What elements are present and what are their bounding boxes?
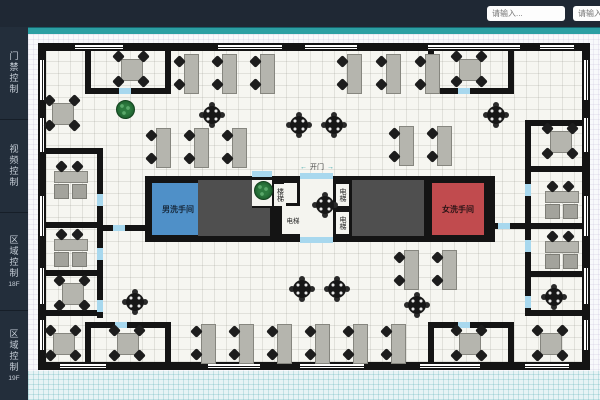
arrow-left-icon: ← (300, 164, 307, 171)
desk-top (222, 54, 237, 94)
door-marker[interactable] (498, 223, 510, 229)
desk-cluster-4 (45, 96, 79, 130)
lobby-side-box (284, 183, 297, 203)
wall-segment (85, 322, 91, 368)
elevator-room: 电梯 (282, 206, 304, 234)
round-table (316, 196, 334, 214)
wall-segment (165, 43, 171, 94)
desk-cluster-4 (452, 52, 486, 86)
cabinet (54, 184, 69, 199)
window-segment (39, 320, 45, 350)
wall-segment (525, 196, 531, 240)
desk-duo (213, 54, 235, 92)
desk-top (277, 324, 292, 364)
window-segment (583, 320, 589, 350)
round-table (293, 280, 311, 298)
desk-duo (390, 126, 412, 164)
desk-top (315, 324, 330, 364)
round-table (290, 116, 308, 134)
cabinet (545, 254, 560, 269)
window-segment (525, 363, 569, 369)
wall-segment (165, 322, 171, 368)
door-marker[interactable] (252, 171, 272, 177)
desk-cluster-4 (110, 326, 144, 360)
desk-top (260, 54, 275, 94)
office-desk (541, 182, 581, 218)
door-marker[interactable] (300, 237, 333, 243)
service-shaft-left (198, 180, 252, 236)
desk-top (425, 54, 440, 94)
door-marker[interactable] (525, 240, 531, 252)
desk-duo (251, 54, 273, 92)
round-table (126, 293, 144, 311)
wall-segment (508, 43, 514, 94)
round-table (487, 106, 505, 124)
window-segment (39, 268, 45, 304)
desk-top (347, 54, 362, 94)
wall-segment (85, 88, 119, 94)
window-segment (583, 60, 589, 100)
desk-cluster-4 (55, 276, 89, 310)
cabinet (54, 252, 69, 267)
desk-top (386, 54, 401, 94)
desk-cluster-4 (452, 326, 486, 360)
wall-segment (428, 322, 434, 368)
door-marker[interactable] (300, 173, 333, 179)
desk-duo (185, 128, 207, 166)
desk-duo (306, 324, 328, 362)
service-shaft-left-extension (252, 208, 270, 236)
wall-segment (46, 148, 97, 154)
desk-top (156, 128, 171, 168)
desk-top (545, 241, 579, 253)
desk-top (201, 324, 216, 364)
round-table (325, 116, 343, 134)
elevator-shaft-1-label: 电梯 (339, 188, 346, 202)
door-marker[interactable] (97, 248, 103, 260)
desk-top (353, 324, 368, 364)
window-segment (583, 268, 589, 304)
round-table (408, 296, 426, 314)
window-segment (75, 44, 123, 50)
open-door-control[interactable]: ← 开门 → (288, 162, 346, 172)
window-segment (60, 363, 106, 369)
desk-top (437, 126, 452, 166)
door-marker[interactable] (458, 88, 470, 94)
stairs-label: 楼梯 (277, 188, 284, 202)
mens-restroom: 男洗手间 (152, 183, 204, 235)
desk-top (404, 250, 419, 290)
desk-top (442, 250, 457, 290)
cabinet (563, 204, 578, 219)
desk-duo (433, 250, 455, 288)
elevator-shaft-2: 电梯 (336, 212, 349, 234)
office-desk (541, 232, 581, 268)
elevator-shaft-1: 电梯 (336, 184, 349, 206)
round-table (545, 288, 563, 306)
desk-duo (268, 324, 290, 362)
cabinet (72, 184, 87, 199)
wall-segment (531, 310, 582, 316)
office-desk (50, 162, 90, 198)
desk-duo (344, 324, 366, 362)
wall-segment (531, 223, 582, 229)
door-marker[interactable] (113, 225, 125, 231)
desk-cluster-4 (543, 124, 577, 158)
wall-segment (531, 271, 582, 277)
door-marker[interactable] (119, 88, 131, 94)
window-segment (540, 44, 574, 50)
arrow-right-icon: → (327, 164, 334, 171)
desk-top (194, 128, 209, 168)
desk-duo (223, 128, 245, 166)
desk-cluster-4 (533, 326, 567, 360)
mens-restroom-label: 男洗手间 (162, 204, 194, 215)
wall-segment (531, 166, 582, 172)
wall-segment (85, 43, 91, 94)
window-segment (583, 196, 589, 236)
office-desk (50, 230, 90, 266)
cabinet (545, 204, 560, 219)
door-marker[interactable] (97, 300, 103, 312)
desk-top (184, 54, 199, 94)
desk-duo (428, 126, 450, 164)
wall-segment (97, 260, 103, 300)
window-segment (39, 60, 45, 100)
womens-restroom: 女洗手间 (432, 183, 484, 235)
plant-icon (116, 100, 135, 119)
cabinet (563, 254, 578, 269)
window-segment (39, 196, 45, 236)
floor-plan: 男洗手间 楼梯 电梯 电梯 电梯 女洗手间 ← 开门 → (0, 0, 600, 400)
wall-segment (97, 148, 103, 194)
desk-cluster-4 (114, 52, 148, 86)
desk-top (545, 191, 579, 203)
open-door-text: 开门 (310, 162, 324, 172)
wall-segment (46, 222, 97, 228)
desk-duo (147, 128, 169, 166)
desk-top (239, 324, 254, 364)
desk-top (391, 324, 406, 364)
elevator-shaft-2-label: 电梯 (339, 216, 346, 230)
desk-duo (192, 324, 214, 362)
desk-duo (175, 54, 197, 92)
door-marker[interactable] (97, 194, 103, 206)
desk-top (399, 126, 414, 166)
desk-duo (382, 324, 404, 362)
desk-duo (395, 250, 417, 288)
door-marker[interactable] (525, 184, 531, 196)
womens-restroom-label: 女洗手间 (442, 204, 474, 215)
service-shaft-right (352, 180, 424, 236)
wall-segment (508, 322, 514, 368)
desk-duo (230, 324, 252, 362)
desk-duo (338, 54, 360, 92)
desk-top (54, 171, 88, 183)
elevator-room-label: 电梯 (287, 215, 300, 225)
window-segment (218, 44, 282, 50)
wall-segment (46, 310, 97, 316)
wall-segment (97, 312, 103, 318)
wall-segment (525, 120, 531, 184)
round-table (203, 106, 221, 124)
round-table (328, 280, 346, 298)
desk-top (232, 128, 247, 168)
window-segment (420, 363, 480, 369)
window-segment (428, 44, 520, 50)
plant-icon (254, 181, 273, 200)
desk-duo (377, 54, 399, 92)
door-marker[interactable] (525, 296, 531, 308)
desk-top (54, 239, 88, 251)
desk-cluster-4 (46, 326, 80, 360)
cabinet (72, 252, 87, 267)
window-segment (583, 118, 589, 152)
desk-duo (416, 54, 438, 92)
window-segment (305, 44, 357, 50)
